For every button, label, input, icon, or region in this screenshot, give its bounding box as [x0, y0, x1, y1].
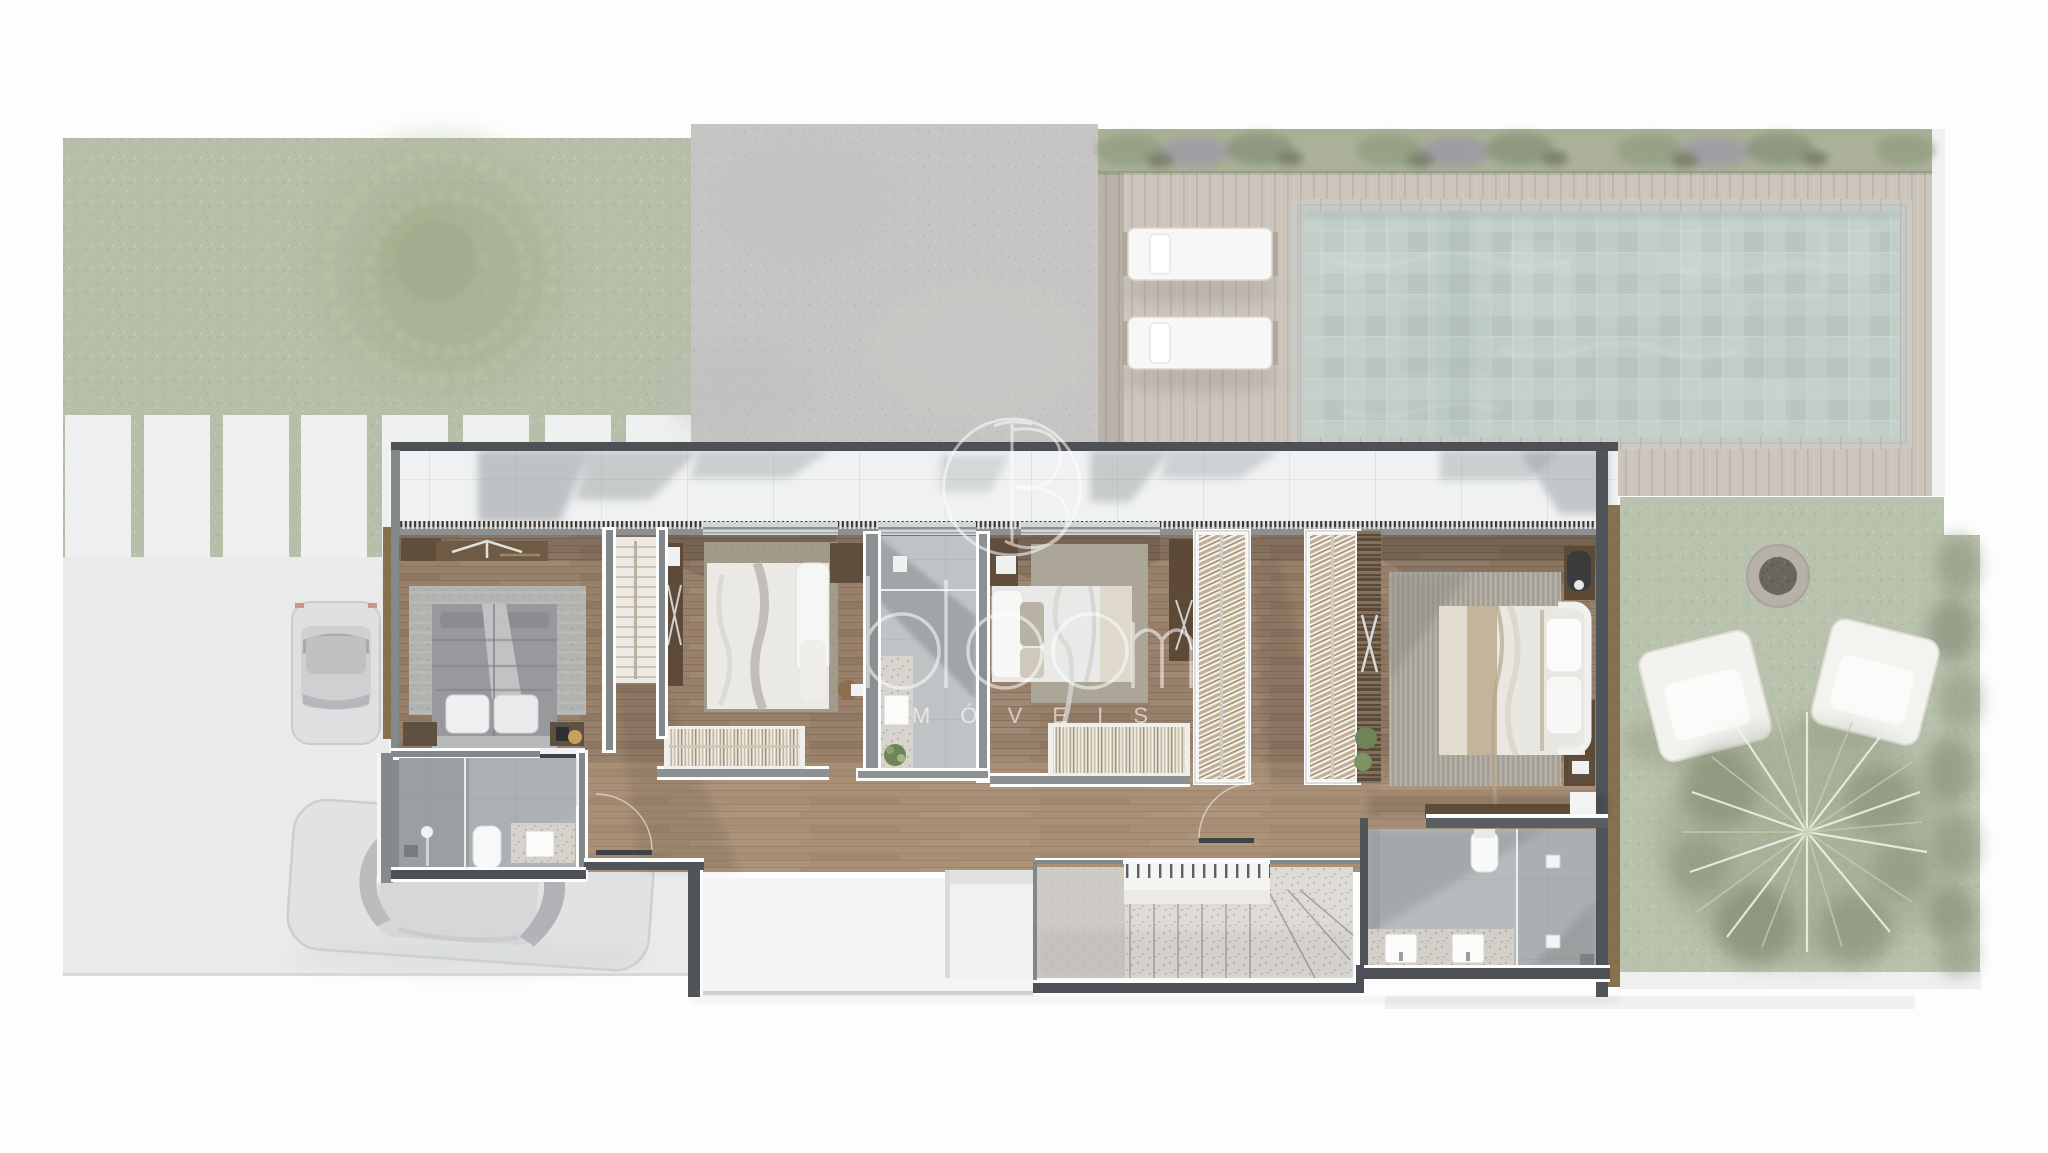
svg-text:M Ó V E I S: M Ó V E I S	[912, 703, 1160, 728]
